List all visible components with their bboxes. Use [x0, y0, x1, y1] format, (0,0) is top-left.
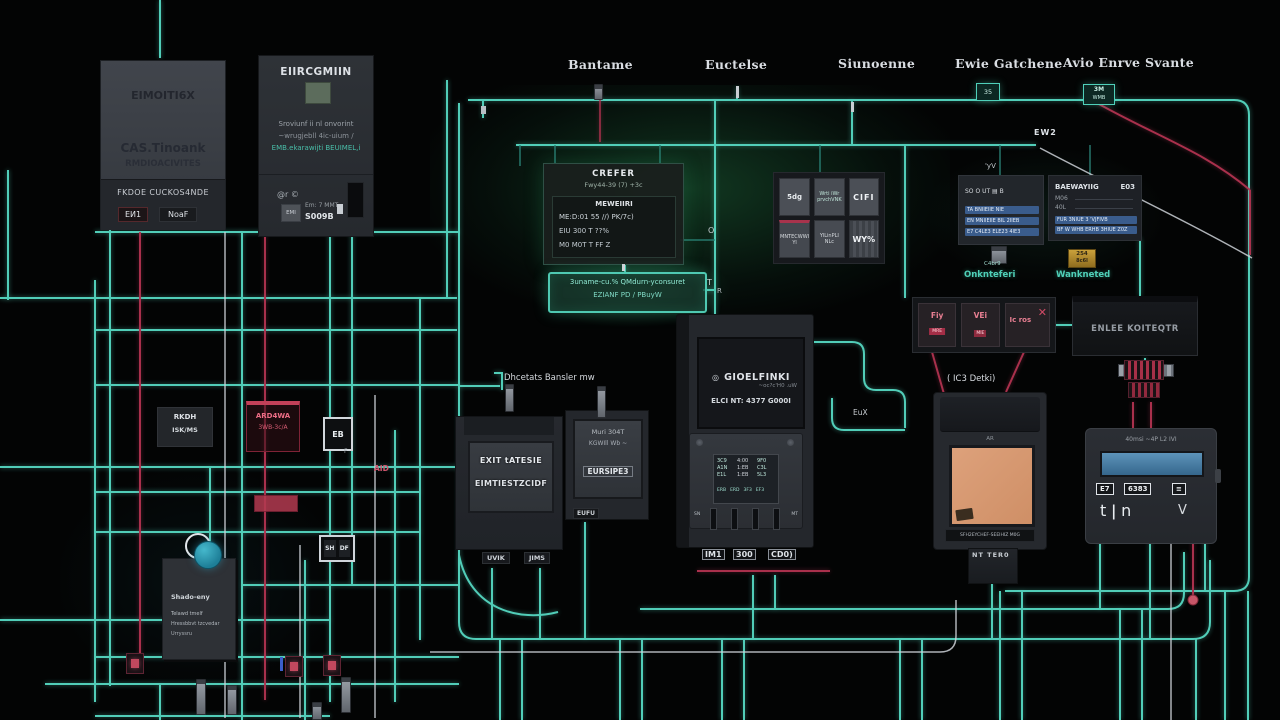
energy-code: S009B [305, 212, 334, 221]
finder-footer-strip: FKDOE CUCKOS4NDE EИ1 NoaF [101, 179, 225, 230]
onk-row0: SO O UT ▤ B [965, 188, 1004, 195]
tan-below-label: NT TER0 [972, 551, 1010, 559]
finder-line2: RMDIOACIVITES [101, 159, 225, 169]
relay-cell-3-text: Ic ros [1010, 316, 1032, 324]
encee-box: ENLEE KOITEQTR [1072, 296, 1198, 356]
eux-label: EuX [853, 408, 868, 417]
meter-lcd-screen [1100, 451, 1204, 477]
brand-icon: ◎ [712, 373, 719, 382]
exit-line2: EIMTIESTZCIDF [470, 479, 552, 488]
mini-val: C3L [757, 465, 775, 472]
mini-val: 4:00 [737, 458, 755, 465]
display-header2: MEWEIIRI [553, 200, 675, 208]
red-warning-line1: ARD4WA [247, 412, 299, 420]
schematic-stage: Bantame Euctelse Siunoenne Ewie Gatchene… [0, 0, 1280, 720]
wank-title-right: E03 [1120, 183, 1135, 191]
meter-token-1: E7 [1096, 483, 1114, 495]
finder-tab-1: EИ1 [118, 207, 148, 222]
connector-pin [227, 685, 237, 715]
wire-tick [481, 106, 486, 114]
slot [710, 508, 717, 530]
tan-device-cap [940, 397, 1040, 432]
display-row3: M0 M0T T FF Z [559, 241, 610, 249]
relay-cell-1-text: Fiy [919, 311, 955, 320]
energy-body1: Sroviunf ii nl onvorint [259, 120, 373, 128]
energy-title: EIIRCGMIIN [259, 66, 373, 78]
wank-blue-row: FUR 3NIUE 3 'VJFIVB [1055, 216, 1137, 224]
mini-val: 9F0 [757, 458, 775, 465]
wank-title: BAEWAYIIG [1055, 183, 1099, 191]
wank-m1: M06 [1055, 195, 1068, 202]
slot [731, 508, 738, 530]
ew2-label: EW2 [1034, 128, 1057, 137]
relay-cell-3: Ic ros ✕ [1005, 303, 1051, 347]
mini-val: A1N [717, 465, 735, 472]
rkdh-box: RKDH ISK/MS [157, 407, 213, 447]
chip-top-text: 254 [1069, 250, 1095, 258]
energy-body2: ~wrugjebll 4ic-uium / [259, 132, 373, 140]
wank-blue-row: BF W WHB ERHB 3HIUE Z0Z [1055, 226, 1137, 234]
status-bar: 3uname-cu.% QMdurn-yconsuret EZIANF PD /… [548, 272, 707, 313]
red-connector-block-2 [1128, 382, 1160, 398]
tan-device: AR SFH2EYCHEF-SEEIHIZ M0G [933, 392, 1047, 550]
wank-panel: BAEWAYIIG E03 M06 40L FUR 3NIUE 3 'VJFIV… [1048, 175, 1142, 241]
meter-side-knob [1215, 469, 1221, 483]
central-caption-3: CD0) [768, 549, 796, 560]
eur-line1: Muri 304T [575, 428, 641, 436]
exit-line1: EXIT tATESIE [470, 456, 552, 465]
finder-title: EIMOITI6X [101, 89, 225, 102]
wire-tick [736, 86, 739, 98]
grid-panel: 5dg Wrti iWr prvchVNK CIFI MNTECWWI Yl Y… [773, 172, 885, 264]
connector-pin [594, 84, 603, 100]
central-model: ELCI NT: 4377 G000I [699, 397, 803, 405]
grid-cell: 5dg [779, 178, 810, 216]
display-row2: EIU 300 T ??% [559, 227, 609, 235]
shdf-box: SH DF [319, 535, 355, 562]
finder-line1: CAS.Tinoank [101, 141, 225, 155]
energy-body3: EMB.ekarawijti BEUIMEL,i [259, 144, 373, 152]
meter-glyph-v: V [1178, 503, 1187, 518]
shadow-box: Shado-eny Telawd tmelf Hressbbvt tzcveda… [162, 558, 236, 660]
wire-marker-3m-top: 3M [1084, 85, 1114, 94]
encee-label: ENLEE KOITEQTR [1091, 324, 1179, 334]
shdf-cell-df: DF [339, 540, 351, 557]
t-mark: T [707, 278, 712, 287]
status-bar-tick [622, 264, 625, 271]
tan-caption: SFH2EYCHEF-SEEIHIZ M0G [945, 529, 1035, 542]
top-label-2: Euctelse [705, 57, 767, 72]
energy-slot [347, 182, 364, 218]
red-component-icon [126, 653, 144, 674]
mini-foot: ERB [717, 488, 726, 500]
shadow-title: Shado-eny [171, 593, 210, 601]
rkdh-line1: RKDH [158, 413, 212, 421]
eb-box: EB [323, 417, 353, 451]
exit-device-cap [464, 417, 554, 435]
rkdh-line2: ISK/MS [158, 426, 212, 434]
top-label-1: Bantame [568, 57, 633, 72]
tan-top-mark: AR [934, 436, 1046, 442]
red-warning-box: ARD4WA 3WB-3c/A [246, 401, 300, 452]
shadow-line3: Urryssru [171, 631, 192, 637]
shdf-cell-sh: SH [324, 540, 336, 557]
red-connector-block [1124, 360, 1164, 380]
eur-screen: Muri 304T KGWIll Wb ~ EURSIPE3 [573, 419, 643, 499]
o-mark: O [708, 226, 714, 235]
relay-cells-row: Fiy MRE VEi MIE Ic ros ✕ [912, 297, 1056, 353]
grid-cell: MNTECWWI Yl [779, 220, 810, 258]
energy-chip: EMI [281, 204, 301, 222]
console-footer: ERB ERD 3F3 EF3 [717, 488, 775, 500]
console-display: 3C9 A1N E1L 4:00 1:EB 1:EB 9F0 C3L 5L3 E… [713, 454, 779, 504]
slot-right-label: MT [791, 512, 798, 517]
mini-foot: ERD [730, 488, 739, 500]
energy-notch [337, 204, 343, 214]
top-label-3: Siunoenne [838, 56, 915, 71]
central-screen: ◎ GIOELFINKI ~oc?c'H0 .uW ELCI NT: 4377 … [697, 337, 805, 429]
display-row1: ME:D:01 55 //) PK/7c) [559, 213, 634, 221]
connector-pin [597, 386, 606, 418]
exit-tab-2: JIMS [524, 552, 550, 564]
eur-line2: KGWIll Wb ~ [575, 440, 641, 447]
mini-val: 1:EB [737, 472, 755, 479]
red-terminal-dot [1188, 595, 1198, 605]
display-panel: CREFER Fwy44-39 (7) +3c MEWEIIRI ME:D:01… [543, 163, 684, 265]
connector-pin [312, 702, 322, 720]
r-mark: R [717, 287, 722, 295]
energy-green-square [305, 82, 331, 104]
red-warning-line2: 3WB-3c/A [247, 424, 299, 431]
central-sub: ~oc?c'H0 .uW [758, 383, 797, 389]
relay-cell-1-sub: MRE [929, 328, 945, 335]
top-label-4: Ewie Gatchene [955, 56, 1062, 71]
central-caption-1: IM1 [702, 549, 725, 560]
meter-top-line: 40msi ~4P L2 IVI [1086, 436, 1216, 443]
wank-m1-line [1075, 199, 1133, 200]
console-col-b: 4:00 1:EB 1:EB [737, 458, 755, 486]
meter-token-3: ≡ [1172, 483, 1186, 495]
screw-icon [696, 439, 703, 446]
grid-cell: CIFI [849, 178, 879, 216]
connector-pin [341, 677, 351, 713]
energy-at-mark: @r © [277, 190, 299, 199]
energy-box: EIIRCGMIIN Sroviunf ii nl onvorint ~wrug… [258, 55, 374, 237]
red-component-icon [285, 656, 303, 677]
shadow-line2: Hressbbvt tzcvedar [171, 621, 220, 627]
grid-cell: WY% [849, 220, 879, 258]
relay-cell-3-x-icon: ✕ [1038, 306, 1047, 319]
slot-left-label: SN [694, 512, 700, 517]
teal-node-icon [194, 541, 222, 569]
connector-pin [196, 679, 206, 715]
finder-footer-text: FKDOE CUCKOS4NDE [101, 188, 225, 197]
red-block [254, 495, 298, 512]
wank-m2-line [1075, 208, 1133, 209]
top-label-5: Avio Enrve Svante [1063, 55, 1194, 70]
relay-cell-2-text: VEi [962, 311, 998, 320]
energy-divider [259, 174, 373, 175]
exit-device: EXIT tATESIE EIMTIESTZCIDF [455, 416, 563, 550]
tan-screen [949, 445, 1035, 527]
mini-val: 3C9 [717, 458, 735, 465]
onk-blue-row: E7 C4LE3 ELE23 4IE3 [965, 228, 1039, 236]
eur-device: Muri 304T KGWIll Wb ~ EURSIPE3 [565, 410, 649, 520]
relay-cell-2: VEi MIE [961, 303, 999, 347]
meter-glyphs: t ǀ n [1100, 501, 1131, 520]
relay-cell-2-sub: MIE [974, 330, 986, 337]
exit-tab-1: UVIK [482, 552, 510, 564]
wank-orange-chip: 254 8c6l [1068, 249, 1096, 268]
shadow-line1: Telawd tmelf [171, 611, 203, 617]
central-console: 3C9 A1N E1L 4:00 1:EB 1:EB 9F0 C3L 5L3 E… [689, 433, 803, 529]
onk-panel: SO O UT ▤ B TA BNIIEIIE NIE EN MNIIEIIE … [958, 175, 1044, 245]
chip-bottom-text: 8c6l [1069, 258, 1095, 265]
eur-tab: EUFU [573, 508, 599, 519]
finder-tab-2: NoaF [159, 207, 197, 222]
onk-blue-row: EN MNIIEIIE BIL 2IIEB [965, 217, 1039, 225]
display-inner: MEWEIIRI ME:D:01 55 //) PK/7c) EIU 300 T… [552, 196, 676, 258]
wire-marker-3m-bottom: WMB [1084, 94, 1114, 102]
console-col-c: 9F0 C3L 5L3 [757, 458, 775, 486]
screw-icon [787, 439, 794, 446]
central-brand: GIOELFINKI [724, 372, 790, 383]
status-line2: EZIANF PD / PBuyW [550, 291, 705, 299]
grid-cell: YlLinPLI NLc [814, 220, 844, 258]
red-component-icon [323, 655, 341, 676]
bansler-label: Dhcetats Bansler mw [504, 373, 595, 383]
wire-marker-35: 35 [976, 83, 1000, 101]
mini-val: 5L3 [757, 472, 775, 479]
wire-tick [851, 102, 854, 112]
exit-screen: EXIT tATESIE EIMTIESTZCIDF [468, 441, 554, 513]
eb-f-mark: F [344, 448, 347, 455]
eb-text: EB [332, 430, 344, 439]
eur-line3: EURSIPE3 [583, 466, 632, 477]
console-col-a: 3C9 A1N E1L [717, 458, 735, 486]
display-title: CREFER [544, 169, 683, 179]
relay-cell-1: Fiy MRE [918, 303, 956, 347]
slot [773, 508, 780, 530]
aid-label: AID [374, 464, 389, 473]
mini-val: E1L [717, 472, 735, 479]
onk-top-mark: 'yV [985, 162, 996, 170]
status-line1: 3uname-cu.% QMdurn-yconsuret [550, 278, 705, 286]
energy-em-line: Em: 7 MMT [305, 202, 338, 209]
mini-foot: 3F3 [744, 488, 752, 500]
mini-val: 1:EB [737, 465, 755, 472]
finder-box: EIMOITI6X CAS.Tinoank RMDIOACIVITES FKDO… [100, 60, 226, 230]
wire-marker-3m: 3M WMB [1083, 84, 1115, 105]
central-caption-2: 300 [733, 549, 756, 560]
mini-foot: EF3 [756, 488, 764, 500]
grid-cell: Wrti iWr prvchVNK [814, 178, 844, 216]
onk-pin-mark: C4br9 [984, 261, 1001, 267]
onk-label: Onknteferi [964, 270, 1015, 280]
slot [752, 508, 759, 530]
display-sub: Fwy44-39 (7) +3c [544, 181, 683, 189]
meter-token-2: 6383 [1124, 483, 1151, 495]
meter-device: 40msi ~4P L2 IVI E7 6383 ≡ t ǀ n V [1085, 428, 1217, 544]
wank-label: Wankneted [1056, 270, 1110, 280]
onk-blue-row: TA BNIIEIIE NIE [965, 206, 1039, 214]
central-device: ◎ GIOELFINKI ~oc?c'H0 .uW ELCI NT: 4377 … [676, 314, 814, 548]
console-slots [710, 508, 780, 530]
tan-screen-mark [955, 508, 973, 521]
relay-row-label: ( IC3 Detki) [947, 374, 995, 384]
blue-tick [280, 657, 283, 671]
connector-pin [505, 384, 514, 412]
wank-m2: 40L [1055, 204, 1066, 211]
